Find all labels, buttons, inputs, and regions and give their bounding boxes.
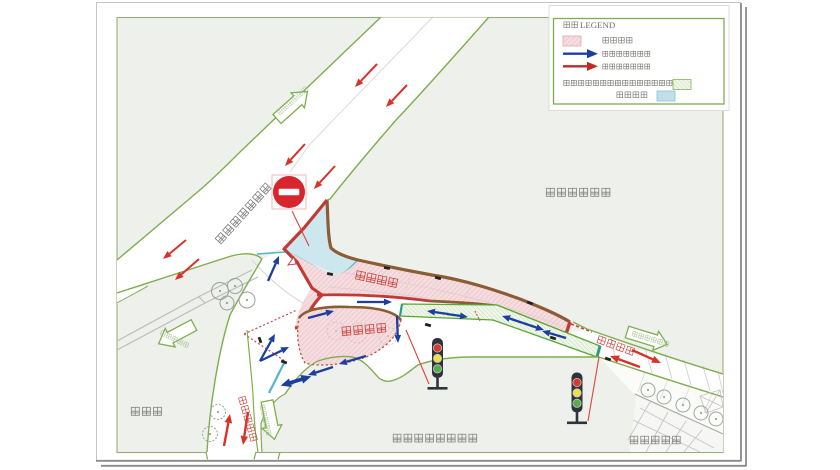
svg-text:LEGEND: LEGEND: [580, 20, 615, 30]
